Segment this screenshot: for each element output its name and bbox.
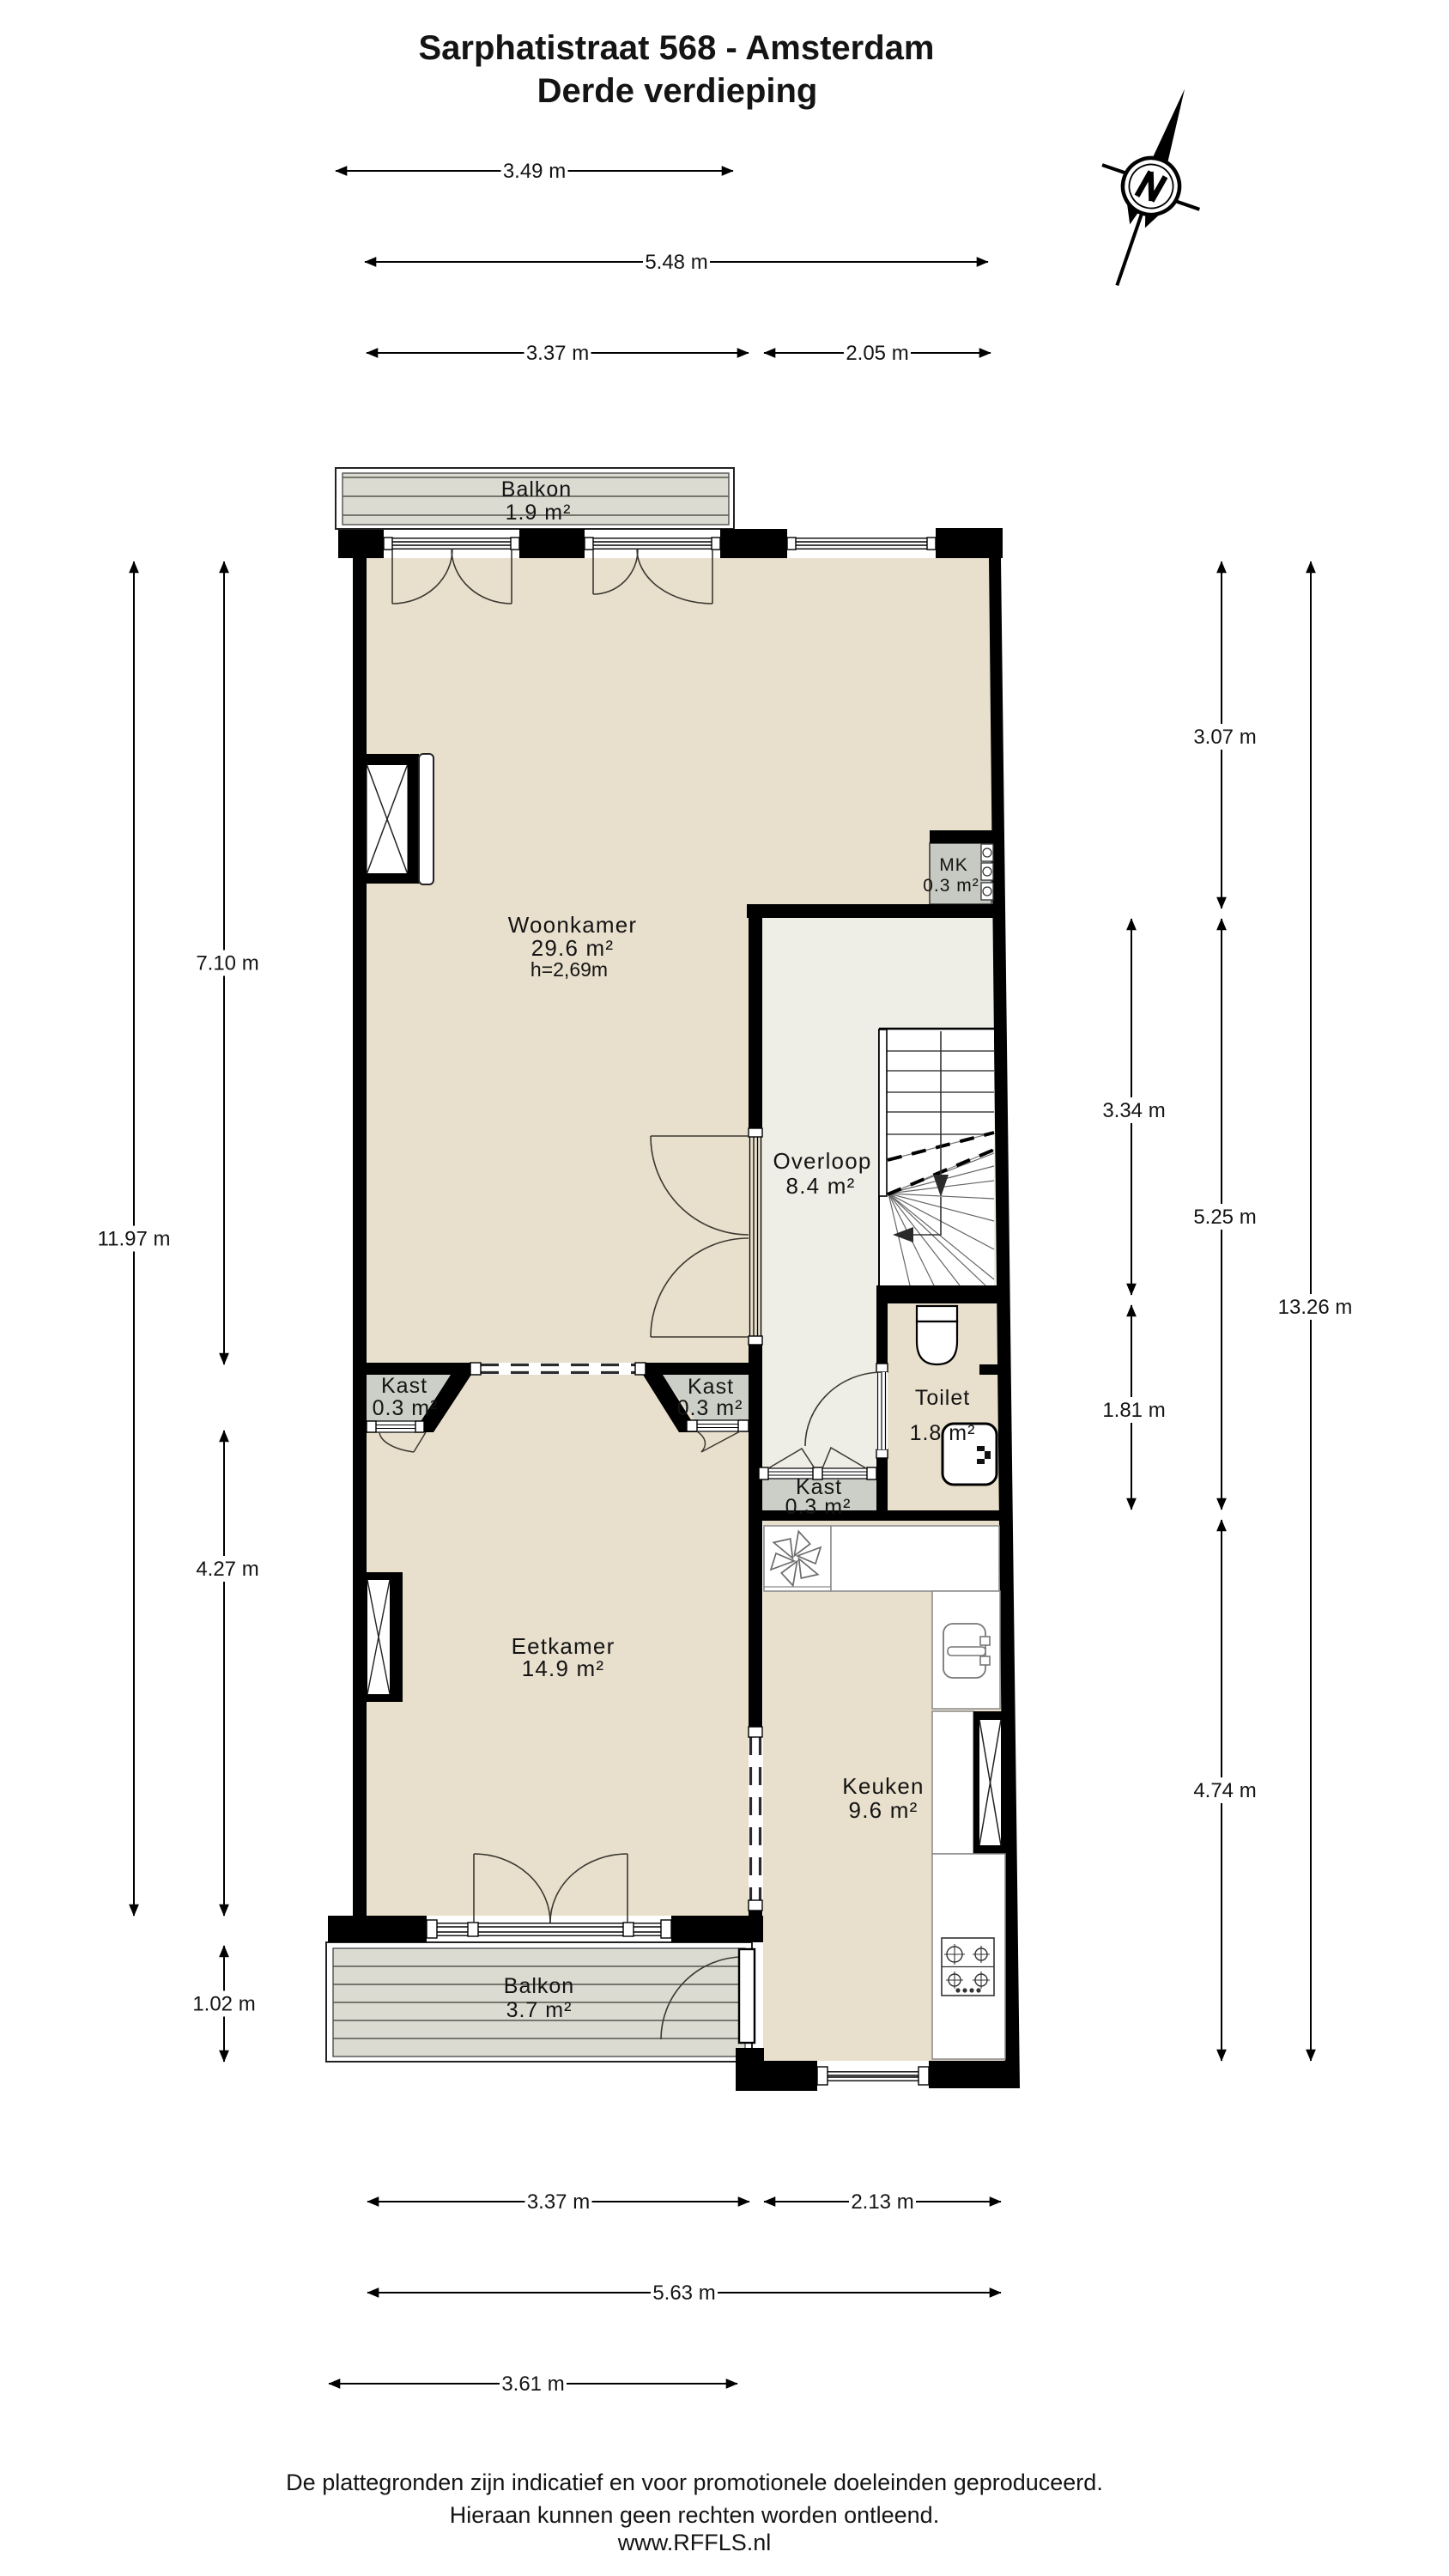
- svg-text:8.4 m²: 8.4 m²: [786, 1173, 856, 1199]
- svg-text:3.07 m: 3.07 m: [1193, 726, 1256, 749]
- svg-text:Woonkamer: Woonkamer: [508, 912, 638, 938]
- svg-text:29.6 m²: 29.6 m²: [531, 935, 615, 961]
- svg-text:Kast: Kast: [381, 1374, 427, 1398]
- svg-text:3.34 m: 3.34 m: [1102, 1099, 1165, 1122]
- svg-text:Toilet: Toilet: [915, 1386, 970, 1410]
- svg-text:11.97 m: 11.97 m: [98, 1228, 171, 1251]
- svg-text:5.63 m: 5.63 m: [652, 2281, 715, 2305]
- svg-text:3.49 m: 3.49 m: [503, 160, 566, 183]
- svg-text:13.26 m: 13.26 m: [1278, 1296, 1353, 1319]
- svg-text:Balkon: Balkon: [504, 1974, 574, 1998]
- svg-text:Overloop: Overloop: [773, 1148, 871, 1174]
- svg-text:14.9 m²: 14.9 m²: [522, 1656, 605, 1681]
- svg-text:1.81 m: 1.81 m: [1102, 1399, 1165, 1422]
- svg-text:3.7 m²: 3.7 m²: [506, 1998, 573, 2022]
- svg-text:5.25 m: 5.25 m: [1193, 1206, 1256, 1229]
- svg-text:7.10 m: 7.10 m: [196, 952, 258, 975]
- svg-text:3.37 m: 3.37 m: [526, 342, 589, 365]
- svg-text:9.6 m²: 9.6 m²: [849, 1797, 919, 1823]
- svg-text:2.05 m: 2.05 m: [846, 342, 908, 365]
- svg-text:Keuken: Keuken: [842, 1773, 924, 1799]
- svg-text:Sarphatistraat 568 - Amsterdam: Sarphatistraat 568 - Amsterdam: [419, 29, 935, 67]
- svg-text:0.3 m²: 0.3 m²: [373, 1396, 439, 1420]
- svg-text:h=2,69m: h=2,69m: [530, 958, 608, 981]
- svg-text:MK: MK: [939, 855, 968, 875]
- svg-text:0.3 m²: 0.3 m²: [923, 876, 979, 896]
- svg-text:De plattegronden zijn indicati: De plattegronden zijn indicatief en voor…: [286, 2470, 1103, 2495]
- svg-text:www.RFFLS.nl: www.RFFLS.nl: [617, 2530, 772, 2555]
- svg-text:1.8 m²: 1.8 m²: [910, 1421, 976, 1445]
- svg-text:3.37 m: 3.37 m: [527, 2190, 590, 2214]
- svg-text:Hieraan kunnen geen rechten wo: Hieraan kunnen geen rechten worden ontle…: [450, 2502, 939, 2528]
- svg-text:5.48 m: 5.48 m: [645, 251, 707, 274]
- svg-text:4.27 m: 4.27 m: [196, 1558, 258, 1581]
- svg-text:Kast: Kast: [688, 1375, 734, 1399]
- svg-text:Balkon: Balkon: [501, 477, 572, 501]
- svg-text:0.3 m²: 0.3 m²: [677, 1396, 743, 1420]
- svg-text:Derde verdieping: Derde verdieping: [537, 72, 818, 110]
- svg-text:1.9 m²: 1.9 m²: [506, 501, 572, 525]
- svg-text:3.61 m: 3.61 m: [501, 2372, 564, 2396]
- svg-text:0.3 m²: 0.3 m²: [785, 1495, 852, 1519]
- svg-text:1.02 m: 1.02 m: [192, 1993, 255, 2016]
- svg-text:4.74 m: 4.74 m: [1193, 1779, 1256, 1802]
- svg-text:2.13 m: 2.13 m: [851, 2190, 913, 2214]
